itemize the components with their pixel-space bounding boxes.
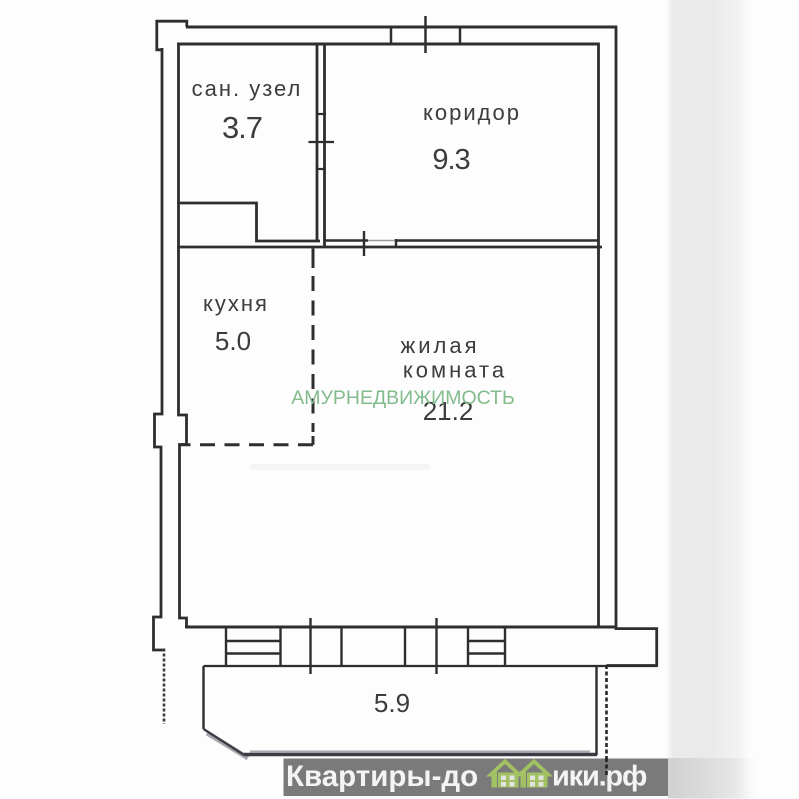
- svg-text:комната: комната: [403, 358, 507, 383]
- svg-text:9.3: 9.3: [432, 144, 469, 176]
- svg-text:кухня: кухня: [203, 291, 269, 316]
- svg-text:ики.рф: ики.рф: [552, 761, 647, 793]
- svg-text:Квартиры-до: Квартиры-до: [286, 760, 478, 793]
- svg-text:сан. узел: сан. узел: [192, 76, 303, 101]
- svg-text:жилая: жилая: [401, 333, 480, 358]
- svg-text:АМУРНЕДВИЖИМОСТЬ: АМУРНЕДВИЖИМОСТЬ: [291, 387, 515, 409]
- svg-text:5.9: 5.9: [374, 688, 410, 718]
- svg-text:3.7: 3.7: [222, 110, 262, 145]
- svg-text:коридор: коридор: [423, 100, 521, 125]
- svg-text:5.0: 5.0: [215, 326, 251, 356]
